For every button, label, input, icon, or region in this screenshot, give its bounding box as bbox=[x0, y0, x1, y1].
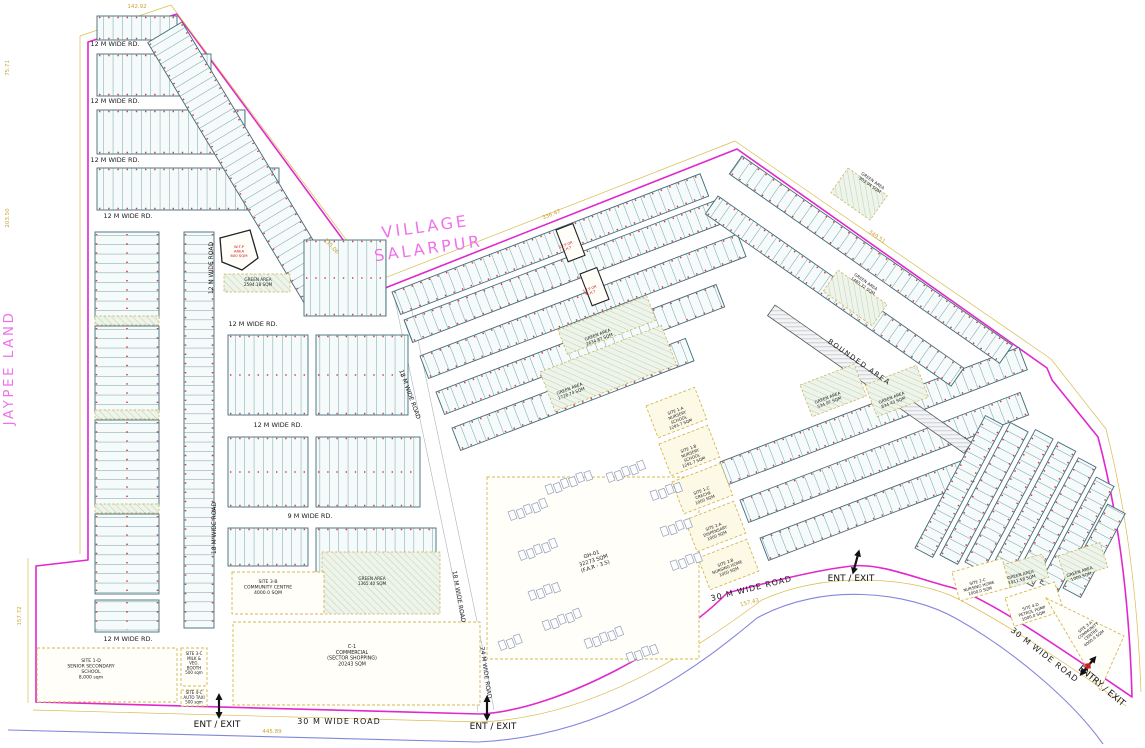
ent-exit-marker bbox=[484, 695, 491, 721]
arrow-head-icon bbox=[216, 693, 223, 700]
plot-strip-body bbox=[228, 528, 308, 566]
plot-strip bbox=[228, 528, 308, 566]
plot-strip-body bbox=[95, 232, 159, 318]
plot-strip bbox=[95, 326, 159, 412]
building-outline bbox=[621, 466, 630, 477]
plot-strip-body bbox=[95, 420, 159, 506]
jaypee-label: JAYPEE LAND bbox=[1, 311, 17, 427]
village-label: VILLAGESALARPUR bbox=[370, 210, 484, 266]
dimension-label: 142.92 bbox=[127, 4, 146, 10]
ent-exit-marker bbox=[849, 549, 862, 576]
road-label: 12 M WIDE ROAD bbox=[208, 242, 215, 295]
green-area bbox=[95, 316, 159, 325]
arrow-head-icon bbox=[854, 549, 863, 558]
site-plan: VILLAGESALARPURJAYPEE LAND12 M WIDE RD.1… bbox=[0, 0, 1145, 748]
road-label: 12 M WIDE RD. bbox=[103, 635, 152, 643]
plot-strip-body bbox=[316, 437, 420, 507]
road-label: 9 M WIDE RD. bbox=[288, 512, 333, 520]
arrow-head-icon bbox=[484, 714, 491, 721]
road-label: 30 M WIDE ROAD bbox=[297, 717, 381, 726]
road-label: 12 M WIDE RD. bbox=[90, 97, 139, 105]
plot-strip bbox=[95, 514, 159, 594]
plot-strip bbox=[228, 437, 308, 507]
school-parcel bbox=[37, 648, 177, 702]
dimension-label: 75.71 bbox=[5, 60, 11, 76]
road-label: 18 M WIDE ROAD bbox=[211, 502, 218, 555]
plot-strip bbox=[316, 437, 420, 507]
green-area bbox=[95, 410, 159, 419]
site-plan-drawing: VILLAGESALARPURJAYPEE LAND12 M WIDE RD.1… bbox=[0, 0, 1145, 748]
plot-strip bbox=[95, 420, 159, 506]
dimension-label: 203.50 bbox=[5, 208, 11, 228]
green-area bbox=[95, 504, 159, 513]
plot-strip bbox=[95, 232, 159, 318]
road-label: 12 M WIDE RD. bbox=[253, 421, 302, 429]
ent-exit-label: ENT / EXIT bbox=[470, 722, 517, 732]
parcel-label: SITE 4-CAUTO TAXI500 sqm bbox=[183, 690, 204, 705]
plot-strip bbox=[95, 600, 159, 632]
plot-strip-body bbox=[316, 335, 408, 415]
green-area-label: GREEN AREA2594.18 SQM bbox=[244, 277, 273, 287]
building-outline bbox=[637, 460, 646, 471]
plot-strip-body bbox=[95, 600, 159, 632]
dimension-label: 445.89 bbox=[262, 729, 282, 735]
ent-exit-label: ENT / EXIT bbox=[194, 720, 241, 730]
plot-strip-body bbox=[95, 326, 159, 412]
dimension-label: 157.72 bbox=[17, 606, 23, 625]
green-area bbox=[800, 364, 866, 417]
arrow-head-icon bbox=[216, 712, 223, 719]
road-label: 18 M WIDE ROAD bbox=[451, 570, 467, 623]
plot-strip bbox=[228, 335, 308, 415]
building-outline bbox=[630, 464, 639, 475]
plot-strip bbox=[316, 335, 408, 415]
green-area-label: GREEN AREA1365.40 SQM bbox=[358, 576, 387, 586]
dimension-label: 157.43 bbox=[740, 598, 761, 609]
ent-exit-arrow bbox=[854, 554, 858, 569]
road-label: 12 M WIDE RD. bbox=[90, 156, 139, 164]
road-label: 12 M WIDE RD. bbox=[90, 40, 139, 48]
ent-exit-label: ENT / EXIT bbox=[828, 574, 875, 584]
road-label: 12 M WIDE RD. bbox=[103, 212, 152, 220]
road-label: 12 M WIDE RD. bbox=[228, 320, 277, 328]
